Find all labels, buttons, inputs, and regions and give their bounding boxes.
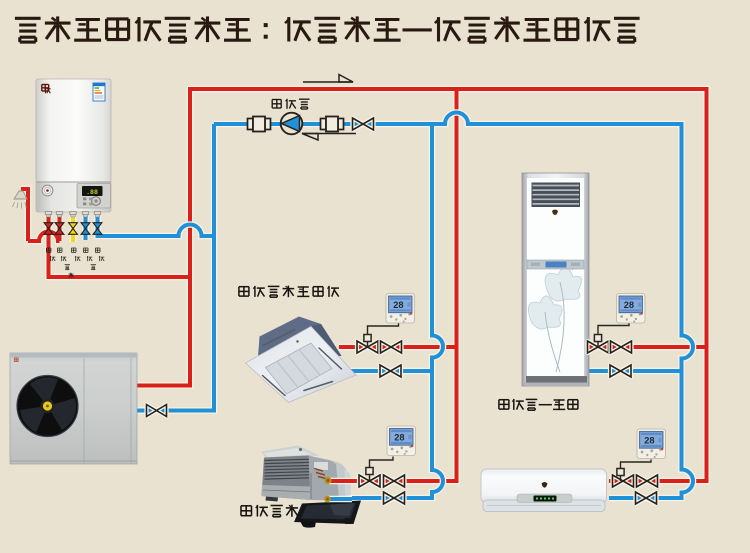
svg-text:28: 28 xyxy=(624,300,634,310)
svg-text:.88: .88 xyxy=(86,189,98,196)
svg-text:28: 28 xyxy=(644,436,654,446)
svg-text:28: 28 xyxy=(393,300,403,310)
svg-text:28: 28 xyxy=(394,433,404,443)
